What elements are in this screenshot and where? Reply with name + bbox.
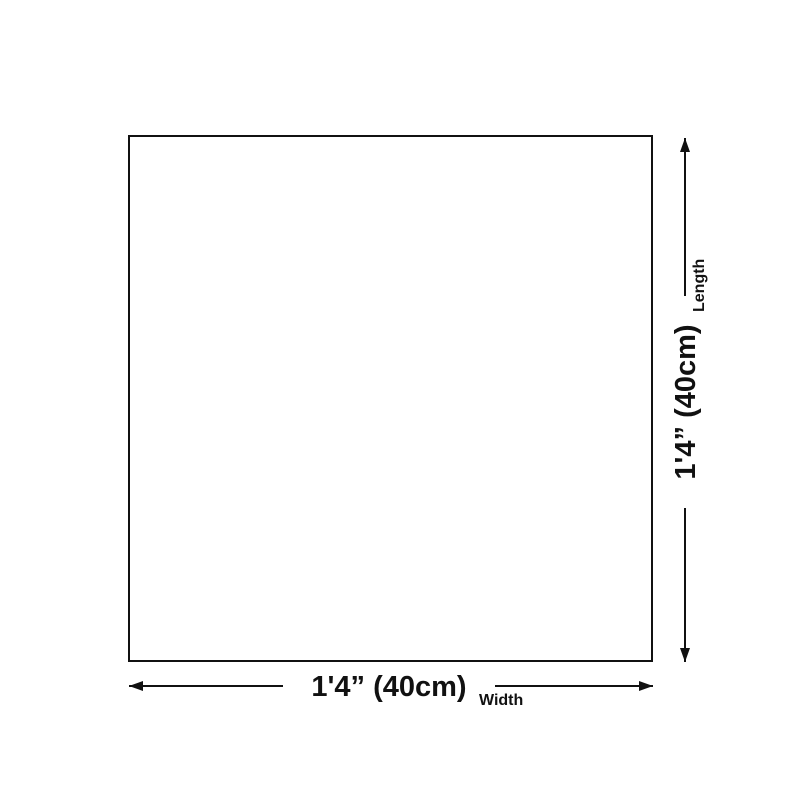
length-value: 1'4” (40cm) [672,296,701,508]
arrow-down-icon [680,648,690,662]
width-value: 1'4” (40cm) [283,673,495,702]
length-dimension: 1'4” (40cm) Length [663,138,707,662]
arrow-up-icon [680,138,690,152]
product-outline [128,135,653,662]
width-dimension-inner: 1'4” (40cm) Width [129,664,653,708]
length-dimension-inner: 1'4” (40cm) Length [663,138,707,662]
width-dimension-line-right: Width [495,685,653,688]
arrow-left-icon [129,681,143,691]
dimension-diagram: 1'4” (40cm) Width 1'4” (40cm) Length [0,0,800,800]
width-dimension-line-left [129,685,283,688]
length-dimension-line-top: Length [684,138,687,296]
width-dimension: 1'4” (40cm) Width [129,664,653,708]
length-label: Length [692,259,708,312]
width-label: Width [479,693,523,709]
arrow-right-icon [639,681,653,691]
length-dimension-line-bottom [684,508,687,662]
